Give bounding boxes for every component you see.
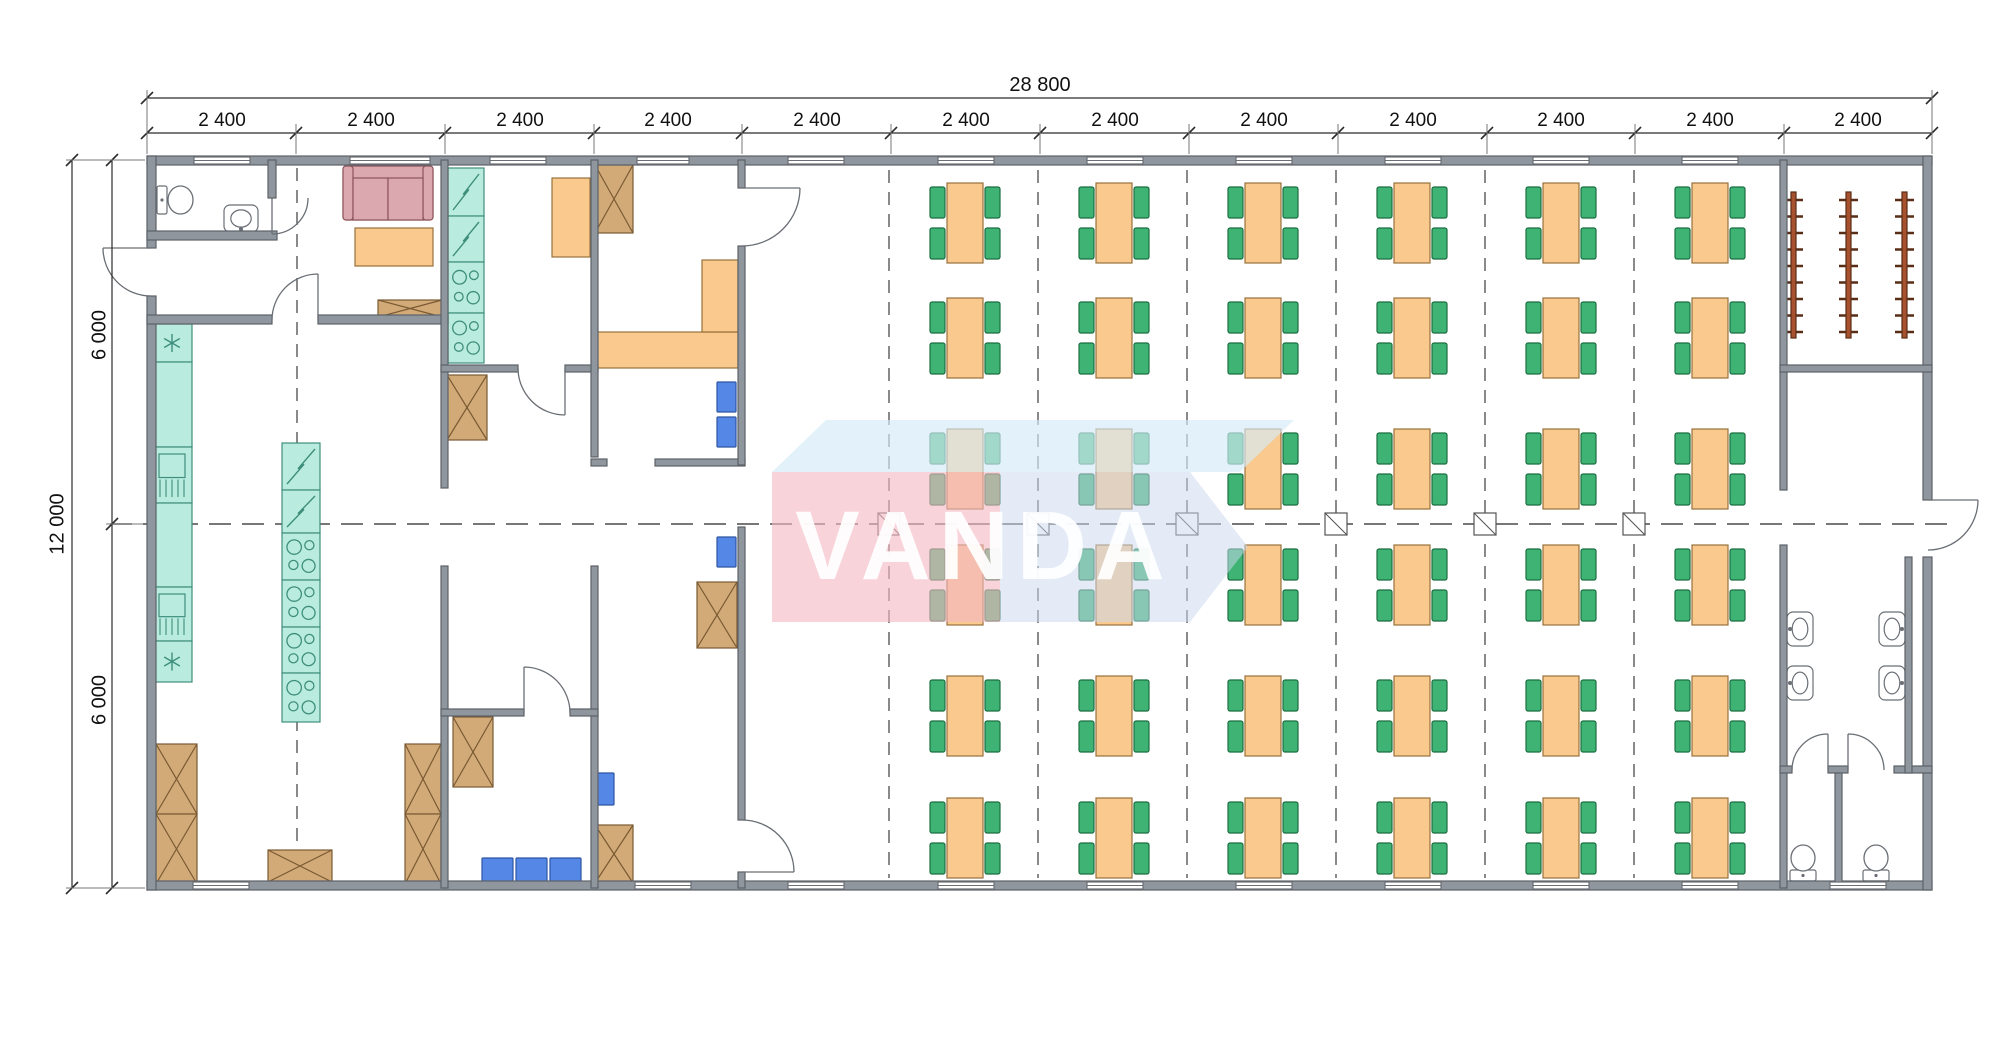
dining-table xyxy=(1543,298,1579,378)
dining-chair xyxy=(1675,187,1690,218)
wall-segment xyxy=(570,709,598,716)
dining-chair xyxy=(1228,302,1243,333)
dining-chair xyxy=(1228,474,1243,505)
dining-chair xyxy=(1581,721,1596,752)
kitchen-counter xyxy=(152,362,192,447)
dining-chair xyxy=(1432,590,1447,621)
sofa-cushion xyxy=(388,178,423,220)
dining-chair xyxy=(1228,187,1243,218)
dining-chair xyxy=(930,302,945,333)
prep-table xyxy=(552,178,590,257)
dining-chair xyxy=(1581,228,1596,259)
basin-tap xyxy=(1900,681,1904,685)
dining-chair xyxy=(1079,802,1094,833)
dining-chair xyxy=(1134,680,1149,711)
dining-chair xyxy=(1730,343,1745,374)
dining-chair xyxy=(1377,721,1392,752)
dining-table xyxy=(1394,545,1430,625)
dimension-total-height: 12 000 xyxy=(47,493,70,554)
dining-table xyxy=(1245,298,1281,378)
dining-chair xyxy=(1526,187,1541,218)
dining-chair xyxy=(1283,721,1298,752)
coat-rail xyxy=(1902,192,1907,338)
stove-unit xyxy=(448,313,484,363)
wall-segment xyxy=(738,246,745,465)
dimension-half-top: 6 000 xyxy=(89,310,112,360)
dining-chair xyxy=(1730,721,1745,752)
door-swing xyxy=(742,820,794,872)
prep-table xyxy=(702,260,738,332)
dining-chair xyxy=(1526,549,1541,580)
dining-chair xyxy=(1283,228,1298,259)
wall-segment xyxy=(1780,160,1787,490)
toilet-flush xyxy=(1801,874,1804,877)
wall-segment xyxy=(591,160,598,457)
dining-chair xyxy=(1730,549,1745,580)
dining-chair xyxy=(1134,802,1149,833)
dining-chair xyxy=(1283,680,1298,711)
dining-chair xyxy=(1283,590,1298,621)
dining-chair xyxy=(1526,802,1541,833)
wall-segment xyxy=(1835,773,1842,888)
dining-chair xyxy=(1283,802,1298,833)
kitchen-counter xyxy=(152,503,192,587)
dining-chair xyxy=(1377,343,1392,374)
dining-chair xyxy=(1730,433,1745,464)
wall-segment xyxy=(1905,557,1912,773)
wall-segment xyxy=(441,365,518,372)
dining-chair xyxy=(1730,302,1745,333)
dining-chair xyxy=(1581,474,1596,505)
dining-chair xyxy=(1283,433,1298,464)
dining-chair xyxy=(1377,549,1392,580)
dining-chair xyxy=(1675,549,1690,580)
stove-unit xyxy=(282,627,320,673)
dining-table xyxy=(1394,798,1430,878)
dining-chair xyxy=(1377,433,1392,464)
dining-chair xyxy=(1377,680,1392,711)
dining-chair xyxy=(1581,802,1596,833)
dining-chair xyxy=(1079,302,1094,333)
dining-chair xyxy=(985,721,1000,752)
wall-segment xyxy=(268,160,276,198)
coat-rail xyxy=(1846,192,1851,338)
dining-chair xyxy=(930,680,945,711)
dining-chair xyxy=(1432,680,1447,711)
toilet-bowl xyxy=(1791,845,1815,871)
dining-chair xyxy=(1675,474,1690,505)
door-swing xyxy=(103,248,151,296)
service-chair xyxy=(482,858,513,883)
wall-segment xyxy=(441,566,448,888)
dining-table xyxy=(1692,183,1728,263)
toilet-bowl xyxy=(1864,845,1888,871)
dining-chair xyxy=(1526,343,1541,374)
dining-chair xyxy=(1079,843,1094,874)
dining-chair xyxy=(1377,590,1392,621)
dining-chair xyxy=(930,843,945,874)
bay-dimension-label: 2 400 xyxy=(1219,110,1309,132)
dining-table xyxy=(1543,183,1579,263)
stove-unit xyxy=(448,262,484,313)
door-swing xyxy=(1792,734,1828,770)
service-chair xyxy=(550,858,581,883)
dining-table xyxy=(1245,183,1281,263)
dining-table xyxy=(1245,676,1281,756)
dining-chair xyxy=(1581,343,1596,374)
dining-chair xyxy=(1228,843,1243,874)
dining-chair xyxy=(1675,590,1690,621)
sofa-cushion xyxy=(353,178,388,220)
bay-dimension-label: 2 400 xyxy=(1368,110,1458,132)
dining-chair xyxy=(1730,843,1745,874)
dining-chair xyxy=(1526,590,1541,621)
bay-dimension-label: 2 400 xyxy=(921,110,1011,132)
basin-tap xyxy=(1900,627,1904,631)
dining-chair xyxy=(1581,680,1596,711)
dining-chair xyxy=(1730,680,1745,711)
dining-chair xyxy=(1134,721,1149,752)
dining-chair xyxy=(1675,680,1690,711)
dining-table xyxy=(1543,676,1579,756)
dining-chair xyxy=(1526,433,1541,464)
dining-chair xyxy=(1432,187,1447,218)
bay-dimension-label: 2 400 xyxy=(475,110,565,132)
dining-chair xyxy=(1675,228,1690,259)
dining-chair xyxy=(1675,343,1690,374)
dining-chair xyxy=(1730,802,1745,833)
dining-table xyxy=(1692,676,1728,756)
floor-plan-canvas: 28 800 2 4002 4002 4002 4002 4002 4002 4… xyxy=(0,0,2000,1041)
wall-segment xyxy=(1894,766,1932,773)
dining-chair xyxy=(1581,843,1596,874)
wall-segment xyxy=(147,296,156,890)
dining-chair xyxy=(1675,302,1690,333)
dining-table xyxy=(947,676,983,756)
dining-chair xyxy=(1377,187,1392,218)
dining-chair xyxy=(1228,802,1243,833)
dining-chair xyxy=(1675,721,1690,752)
vanda-watermark-text: VANDA xyxy=(778,492,1190,602)
dining-chair xyxy=(1432,721,1447,752)
dining-chair xyxy=(930,802,945,833)
wall-segment xyxy=(147,231,277,240)
door-swing xyxy=(518,368,565,415)
stove-unit xyxy=(282,673,320,722)
dining-chair xyxy=(1134,843,1149,874)
dining-chair xyxy=(1526,843,1541,874)
dining-chair xyxy=(1432,549,1447,580)
dining-chair xyxy=(985,302,1000,333)
wall-segment xyxy=(1780,365,1932,372)
dining-chair xyxy=(1526,474,1541,505)
dining-chair xyxy=(1228,343,1243,374)
dining-table xyxy=(1096,183,1132,263)
stove-unit xyxy=(282,580,320,627)
dining-table xyxy=(1096,298,1132,378)
dining-chair xyxy=(1079,343,1094,374)
dining-table xyxy=(1245,798,1281,878)
dining-chair xyxy=(1730,187,1745,218)
sofa-armrest xyxy=(343,166,353,220)
door-swing xyxy=(1928,500,1978,550)
dining-chair xyxy=(1079,187,1094,218)
dining-table xyxy=(1692,298,1728,378)
wall-segment xyxy=(147,881,1932,890)
wall-segment xyxy=(738,160,745,188)
basin-tap xyxy=(1788,627,1792,631)
dining-chair xyxy=(1581,549,1596,580)
dining-table xyxy=(1543,429,1579,509)
stove-unit xyxy=(282,533,320,580)
service-chair xyxy=(717,417,736,447)
wall-segment xyxy=(655,459,745,466)
wall-segment xyxy=(441,709,524,716)
service-chair xyxy=(516,858,547,883)
wall-segment xyxy=(147,315,272,324)
dining-chair xyxy=(930,721,945,752)
door-swing xyxy=(524,667,570,713)
dining-chair xyxy=(1432,843,1447,874)
wall-segment xyxy=(441,160,448,488)
dining-chair xyxy=(1675,433,1690,464)
dining-chair xyxy=(985,343,1000,374)
dining-chair xyxy=(1526,680,1541,711)
dining-table xyxy=(1543,545,1579,625)
bay-dimension-label: 2 400 xyxy=(1665,110,1755,132)
dining-chair xyxy=(1581,590,1596,621)
bay-dimension-label: 2 400 xyxy=(623,110,713,132)
dining-chair xyxy=(1228,590,1243,621)
dining-chair xyxy=(1283,187,1298,218)
dining-table xyxy=(1394,298,1430,378)
dining-chair xyxy=(1377,474,1392,505)
toilet-flush xyxy=(160,198,163,201)
dining-chair xyxy=(1730,228,1745,259)
door-swing xyxy=(272,274,318,320)
door-swing xyxy=(272,198,308,234)
bay-dimension-label: 2 400 xyxy=(1516,110,1606,132)
dining-table xyxy=(1245,545,1281,625)
dining-chair xyxy=(985,843,1000,874)
dimension-total-width: 28 800 xyxy=(990,74,1090,97)
dining-table xyxy=(947,798,983,878)
basin-tap xyxy=(239,227,243,231)
bay-dimension-label: 2 400 xyxy=(326,110,416,132)
dining-chair xyxy=(1432,802,1447,833)
bay-dimension-label: 2 400 xyxy=(772,110,862,132)
dining-table xyxy=(1096,798,1132,878)
bay-dimension-label: 2 400 xyxy=(177,110,267,132)
dining-chair xyxy=(1526,302,1541,333)
wall-segment xyxy=(591,459,607,466)
dining-chair xyxy=(1526,228,1541,259)
dining-table xyxy=(1692,429,1728,509)
dining-chair xyxy=(1675,843,1690,874)
dining-table xyxy=(1543,798,1579,878)
wall-segment xyxy=(1780,766,1792,773)
service-chair xyxy=(717,537,736,567)
door-swing xyxy=(742,188,800,246)
service-chair xyxy=(717,382,736,412)
dining-chair xyxy=(930,187,945,218)
dining-chair xyxy=(930,228,945,259)
dining-table xyxy=(1096,676,1132,756)
dining-chair xyxy=(1526,721,1541,752)
dining-chair xyxy=(1581,433,1596,464)
wall-segment xyxy=(318,315,448,324)
dining-chair xyxy=(1730,590,1745,621)
dining-chair xyxy=(1432,433,1447,464)
dining-chair xyxy=(1377,802,1392,833)
dining-chair xyxy=(930,343,945,374)
dining-chair xyxy=(985,228,1000,259)
wall-segment xyxy=(591,566,598,888)
bay-dimension-label: 2 400 xyxy=(1070,110,1160,132)
dining-chair xyxy=(1432,302,1447,333)
dining-chair xyxy=(1134,302,1149,333)
dining-chair xyxy=(1581,187,1596,218)
dining-table xyxy=(1394,429,1430,509)
dining-chair xyxy=(1283,343,1298,374)
dining-chair xyxy=(1079,721,1094,752)
dining-chair xyxy=(985,187,1000,218)
dining-chair xyxy=(1432,343,1447,374)
wall-segment xyxy=(738,872,745,888)
wall-segment xyxy=(1828,766,1848,773)
dining-table xyxy=(1692,798,1728,878)
dining-table xyxy=(1394,676,1430,756)
dining-chair xyxy=(1283,474,1298,505)
prep-table xyxy=(593,332,738,368)
dining-chair xyxy=(1134,228,1149,259)
coat-rail xyxy=(1791,192,1796,338)
basin-tap xyxy=(1788,681,1792,685)
dining-chair xyxy=(1730,474,1745,505)
dining-chair xyxy=(1079,680,1094,711)
dining-chair xyxy=(1134,187,1149,218)
toilet-flush xyxy=(1874,874,1877,877)
toilet-bowl xyxy=(168,186,193,214)
dining-chair xyxy=(985,802,1000,833)
wall-segment xyxy=(1923,156,1932,500)
dining-table xyxy=(947,298,983,378)
dimension-half-bottom: 6 000 xyxy=(89,675,112,725)
wall-segment xyxy=(1923,557,1932,890)
dining-chair xyxy=(1079,228,1094,259)
dining-chair xyxy=(1432,474,1447,505)
dining-chair xyxy=(1377,843,1392,874)
dining-chair xyxy=(1675,802,1690,833)
dining-chair xyxy=(1377,302,1392,333)
dining-chair xyxy=(1134,343,1149,374)
sofa-armrest xyxy=(423,166,433,220)
dining-chair xyxy=(1377,228,1392,259)
dining-table xyxy=(1692,545,1728,625)
prep-table xyxy=(355,228,433,266)
dining-chair xyxy=(985,680,1000,711)
dining-table xyxy=(1394,183,1430,263)
dining-chair xyxy=(1228,721,1243,752)
dining-chair xyxy=(1283,549,1298,580)
dining-chair xyxy=(1283,302,1298,333)
wall-segment xyxy=(738,527,745,820)
dining-chair xyxy=(1283,843,1298,874)
dining-chair xyxy=(1228,680,1243,711)
dining-chair xyxy=(1228,228,1243,259)
bay-dimension-label: 2 400 xyxy=(1813,110,1903,132)
dining-chair xyxy=(1581,302,1596,333)
watermark-top-face xyxy=(772,420,1294,472)
wall-segment xyxy=(1780,545,1787,888)
dining-table xyxy=(947,183,983,263)
door-swing xyxy=(1848,734,1884,770)
dining-chair xyxy=(1432,228,1447,259)
